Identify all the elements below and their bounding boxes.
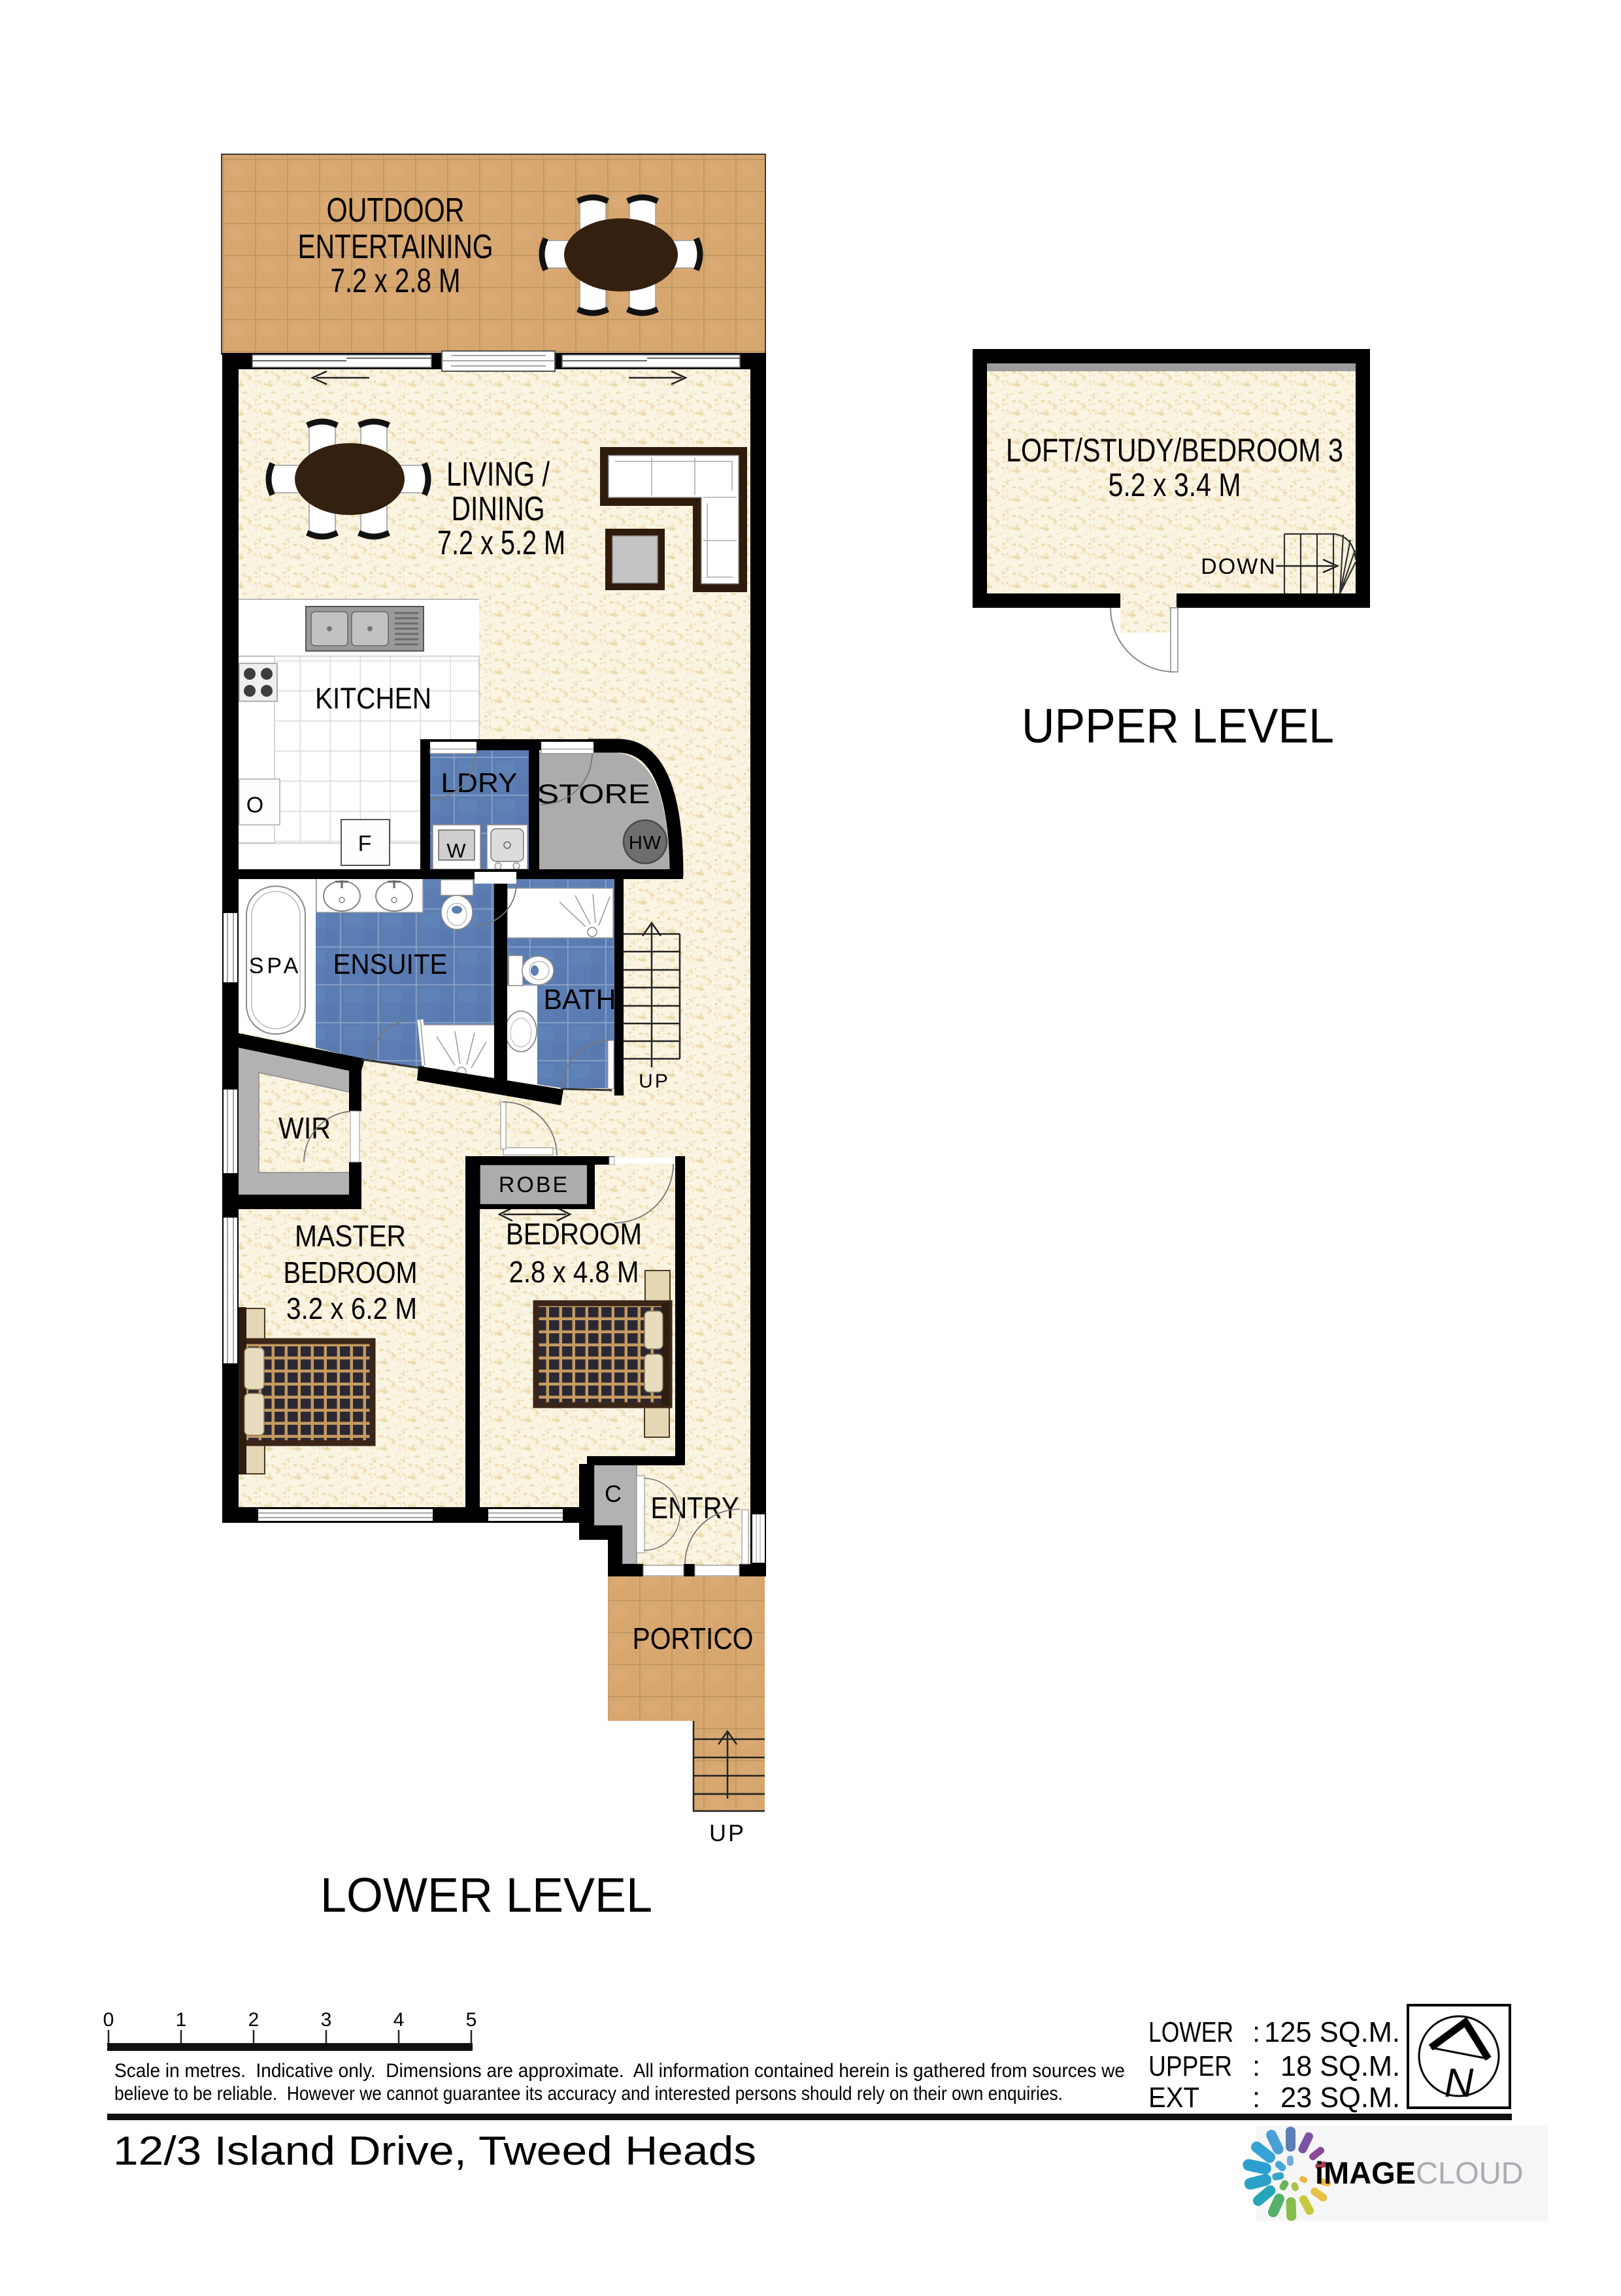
svg-text:5.2 x 3.4 M: 5.2 x 3.4 M — [1109, 467, 1241, 503]
svg-text:DINING: DINING — [452, 490, 545, 528]
svg-text:W: W — [446, 839, 466, 862]
svg-text:18 SQ.M.: 18 SQ.M. — [1280, 2050, 1400, 2082]
svg-text:SPA: SPA — [249, 954, 302, 978]
svg-text:Scale in metres. Indicative o: Scale in metres. Indicative only. Dimens… — [114, 2060, 1125, 2082]
svg-text:UPPER LEVEL: UPPER LEVEL — [1022, 699, 1334, 753]
svg-text:STORE: STORE — [537, 778, 650, 809]
svg-text:2: 2 — [248, 2009, 259, 2031]
svg-text:OUTDOOR: OUTDOOR — [327, 191, 465, 229]
svg-text:5: 5 — [466, 2009, 477, 2031]
svg-text::: : — [1252, 2016, 1260, 2048]
svg-text:KITCHEN: KITCHEN — [315, 682, 431, 715]
svg-text:LIVING /: LIVING / — [446, 456, 550, 493]
svg-text:EXT: EXT — [1148, 2082, 1199, 2114]
svg-text:iMAGECLOUD: iMAGECLOUD — [1315, 2155, 1524, 2190]
svg-text:3: 3 — [321, 2009, 332, 2031]
svg-text:7.2 x 2.8 M: 7.2 x 2.8 M — [331, 262, 461, 300]
svg-text:4: 4 — [393, 2009, 405, 2031]
svg-text:N: N — [1445, 2061, 1474, 2106]
svg-text:ENTERTAINING: ENTERTAINING — [298, 228, 493, 266]
svg-text:LOWER LEVEL: LOWER LEVEL — [320, 1868, 652, 1922]
svg-text:BEDROOM: BEDROOM — [284, 1256, 418, 1289]
svg-text:ENTRY: ENTRY — [651, 1491, 739, 1525]
svg-text:believe to be reliable. Howev: believe to be reliable. However we canno… — [114, 2083, 1063, 2105]
svg-text:ROBE: ROBE — [499, 1173, 569, 1197]
svg-text:3.2 x 6.2 M: 3.2 x 6.2 M — [286, 1291, 417, 1325]
svg-text:LOWER: LOWER — [1148, 2016, 1233, 2048]
svg-text:0: 0 — [103, 2009, 114, 2031]
svg-text:12/3 Island Drive, Tweed Heads: 12/3 Island Drive, Tweed Heads — [113, 2129, 756, 2174]
svg-text:WIR: WIR — [278, 1111, 331, 1145]
svg-text:UP: UP — [639, 1071, 670, 1092]
svg-text:MASTER: MASTER — [295, 1219, 406, 1253]
svg-text:2.8 x 4.8 M: 2.8 x 4.8 M — [509, 1255, 639, 1289]
svg-text:UPPER: UPPER — [1148, 2050, 1232, 2082]
svg-text:BATH: BATH — [544, 984, 616, 1016]
svg-text:125 SQ.M.: 125 SQ.M. — [1264, 2016, 1400, 2048]
svg-text:UP: UP — [709, 1820, 746, 1846]
svg-text:PORTICO: PORTICO — [633, 1622, 754, 1655]
svg-text::: : — [1252, 2050, 1260, 2082]
svg-text:HW: HW — [629, 833, 661, 854]
svg-text:DOWN: DOWN — [1201, 554, 1277, 579]
svg-text:C: C — [605, 1480, 622, 1507]
svg-text:O: O — [246, 793, 263, 818]
svg-text:ENSUITE: ENSUITE — [333, 948, 448, 980]
svg-text:7.2 x 5.2 M: 7.2 x 5.2 M — [437, 524, 565, 562]
svg-text:23 SQ.M.: 23 SQ.M. — [1280, 2082, 1400, 2114]
svg-text:LOFT/STUDY/BEDROOM 3: LOFT/STUDY/BEDROOM 3 — [1006, 432, 1343, 469]
svg-text:F: F — [358, 831, 372, 856]
svg-text::: : — [1252, 2082, 1260, 2114]
svg-text:1: 1 — [176, 2009, 187, 2031]
